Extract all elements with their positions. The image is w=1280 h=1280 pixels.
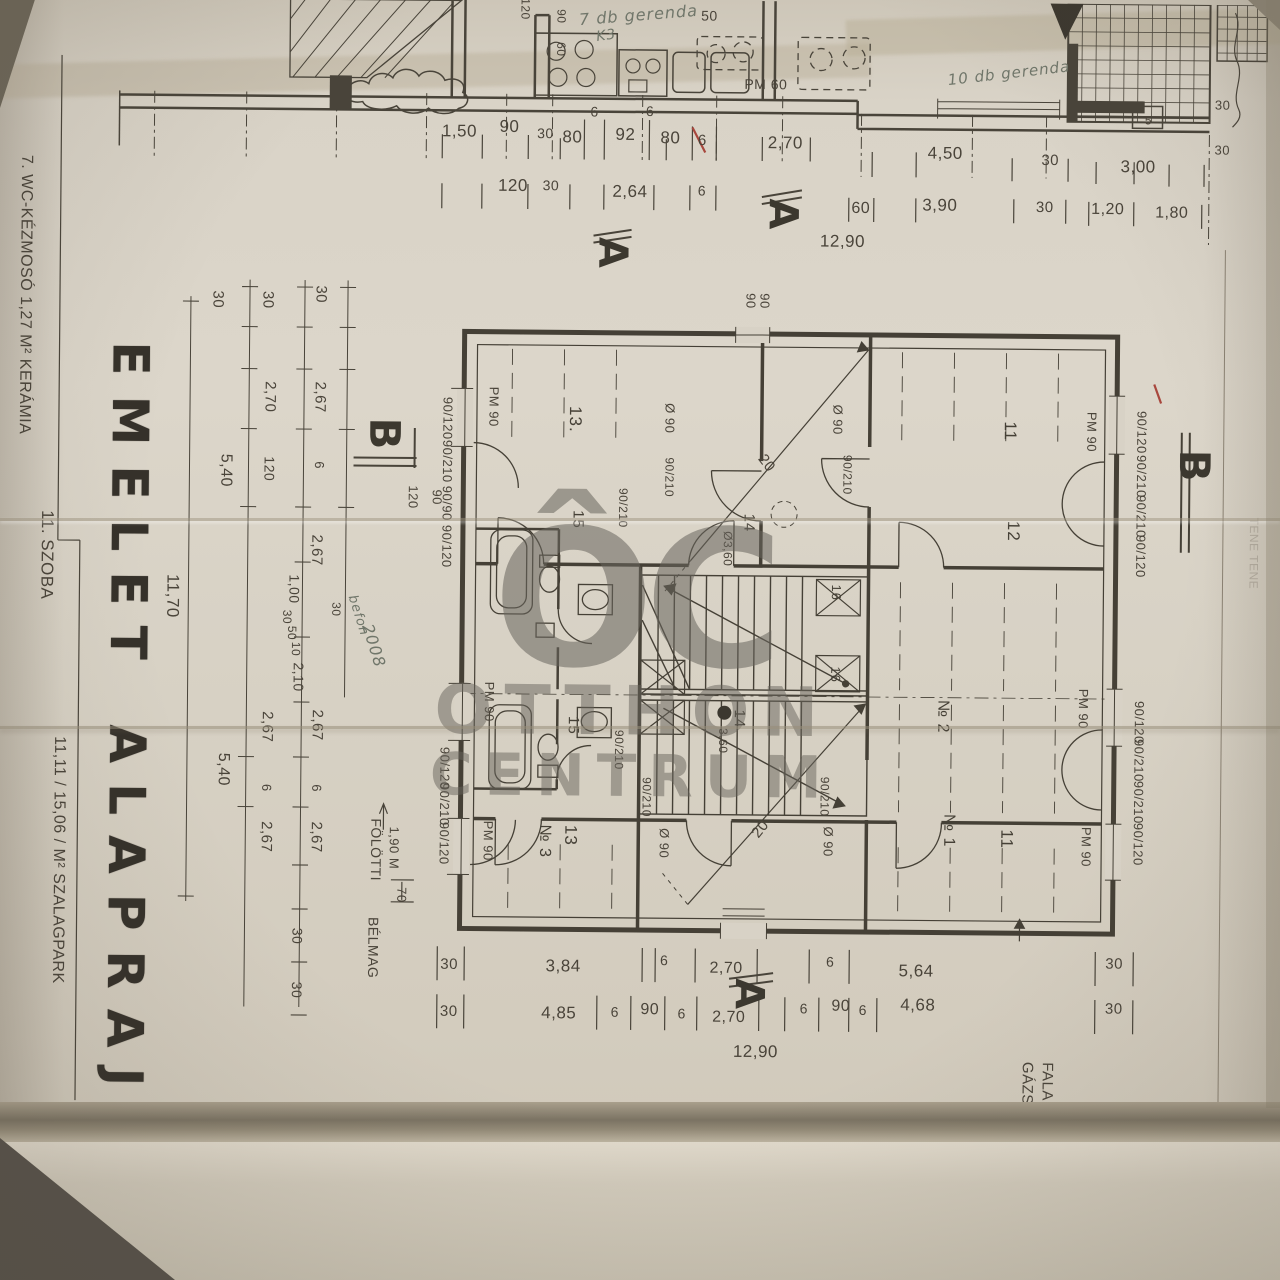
dimension-label: 90/210 <box>840 455 854 495</box>
dimension-label: Ø 90 <box>821 826 836 856</box>
dimension-label: 30 <box>329 602 343 616</box>
dimension-label: 60 <box>554 42 568 56</box>
dimension-label: 10 <box>289 642 303 656</box>
dimension-label: 90 <box>757 293 772 309</box>
dimension-label: 1,20 <box>1091 201 1124 219</box>
room-number: № 1 <box>939 814 957 848</box>
room-number: 11 <box>1000 421 1020 441</box>
room-number: № 3 <box>535 824 553 858</box>
dimension-label: 7 <box>644 1268 659 1276</box>
dimension-label: 90/120 <box>439 525 454 568</box>
dimension-label: 30 <box>1105 956 1123 973</box>
room-number: 12 <box>1003 521 1023 542</box>
dimension-label: 5,40 <box>216 454 234 487</box>
dimension-label: 30 <box>440 956 458 973</box>
dimension-label: 2,70 <box>709 960 742 978</box>
dimension-label: 5 <box>1145 113 1152 127</box>
dimension-label: 90/120 <box>1134 411 1149 454</box>
dimension-label: 6 <box>698 182 706 198</box>
section-marker-a-bottom: A <box>726 978 772 1010</box>
dimension-label: 30 <box>543 177 560 193</box>
dimension-label: TER <box>457 1256 471 1280</box>
dimension-label: KÁT 700/50 <box>994 1143 1012 1227</box>
dimension-label: 12,90 <box>820 232 865 252</box>
dimension-label: 2,67 <box>259 711 276 742</box>
dimension-label: 50 <box>701 8 718 24</box>
dimension-label: 90 <box>554 9 568 23</box>
dimension-label: 2,64 <box>612 182 647 202</box>
dimension-label: 2,70 <box>261 381 278 412</box>
dimension-label: 30 <box>1215 97 1231 112</box>
dimension-label: Ø 90 <box>657 828 672 858</box>
dimension-label: 30 <box>440 1003 458 1020</box>
dimension-label: 6 <box>312 461 327 469</box>
dimension-label: 30 <box>537 125 554 141</box>
dimension-label: 90/120 <box>1132 701 1147 744</box>
dimension-label: 120 <box>406 485 421 508</box>
dimension-label: 90 <box>640 1001 659 1019</box>
dimension-label: 20 <box>754 451 778 475</box>
dimension-label: 90/210 <box>1131 739 1146 782</box>
dimension-label: 90 <box>743 293 758 309</box>
dimension-label: 4,85 <box>541 1003 576 1023</box>
dimension-label: 70 <box>394 887 409 903</box>
faint-text: TENE TENE <box>1246 517 1261 589</box>
section-marker-a-top: A <box>760 198 806 230</box>
dimension-label: 6 <box>859 1002 867 1018</box>
section-label-bb: B-B <box>95 1194 136 1262</box>
dimension-label: 3,84 <box>546 956 581 976</box>
dimension-label: 50 <box>285 626 299 640</box>
dimension-label: 2,67 <box>311 382 328 413</box>
dimension-label: 6 <box>611 1004 619 1020</box>
dimension-label: FÖLÖTTI <box>368 818 385 881</box>
dimension-label: 30 <box>1105 1001 1123 1018</box>
dimension-label: GÁZS <box>1018 1062 1035 1105</box>
dimension-label: 2,67 <box>308 535 325 566</box>
dimension-label: 6 <box>698 132 707 149</box>
room-table-row2b: 11,11 / 15,06 / M² SZALAGPARK <box>48 736 68 984</box>
dimension-label: 6 <box>660 952 668 968</box>
dimension-label: PM 90 <box>1079 827 1094 867</box>
dimension-label: 30 <box>280 610 294 624</box>
room-number: 13. <box>565 406 585 433</box>
dimension-label: PM 90 <box>1076 689 1091 729</box>
room-number: № 2 <box>933 700 951 734</box>
dimension-label: 2,67 <box>308 822 325 853</box>
dimension-label: 30 <box>289 982 305 999</box>
dimension-label: 30 <box>209 290 226 308</box>
dimension-label: 1,00 <box>286 574 302 603</box>
watermark-name-bottom: CENTRUM <box>430 740 834 812</box>
section-marker-a-top2: A <box>589 237 635 269</box>
dimension-label: 3,00 <box>1253 1239 1268 1266</box>
room-table-row2a: 11. SZOBA <box>36 510 57 599</box>
handwritten-note: 7 db gerenda <box>578 1 698 29</box>
dimension-label: 2,70 <box>768 133 803 153</box>
dimension-label: 30 <box>1036 199 1054 216</box>
section-marker-b-right: B <box>1170 449 1219 482</box>
dimension-label: 11,70 <box>162 574 182 618</box>
dimension-label: 80 <box>660 128 680 148</box>
dimension-label: 6 <box>826 954 834 970</box>
room-table-row1: 7. WC-KÉZMOSÓ 1,27 M² KERÁMIA <box>15 155 35 435</box>
dimension-label: 80 <box>562 127 582 147</box>
dimension-label: 90/120 <box>437 822 452 865</box>
handwritten-note: K3 <box>595 26 617 44</box>
dimension-label: 90/120 <box>1133 535 1148 578</box>
dimension-label: 2,10 <box>291 662 307 691</box>
dimension-label: FALA <box>1038 1062 1055 1101</box>
section-marker-b-left: B <box>360 417 409 450</box>
dimension-label: PM 90 <box>1084 412 1099 452</box>
dimension-label: 92 <box>615 125 635 145</box>
dimension-label: 6 <box>800 1000 808 1016</box>
dimension-label: 30 <box>289 928 305 945</box>
dimension-label: 90/120 <box>1131 823 1146 866</box>
dimension-label: 90 <box>499 117 519 137</box>
dimension-label: 90 <box>831 998 850 1016</box>
dimension-label: 20 <box>748 817 772 841</box>
dimension-label: 90/120 <box>440 397 455 440</box>
dimension-label: PM 90 <box>481 821 496 861</box>
dimension-label: 5,40 <box>214 753 232 786</box>
dimension-label: 4,50 <box>928 143 963 163</box>
dimension-label: PM 60 <box>744 76 787 92</box>
plan-title-line1: EMELET <box>99 341 160 680</box>
dimension-label: 6 <box>678 1005 686 1021</box>
room-number: 16 <box>829 584 844 601</box>
room-number: 13 <box>560 825 580 846</box>
dimension-label: 90/210 <box>1134 455 1149 498</box>
handwritten-note: 2008 <box>358 621 390 669</box>
dimension-label: 5,64 <box>898 961 933 981</box>
dimension-label: 60 <box>851 200 870 218</box>
plan-title-line2: ALAPRAJZ <box>94 724 156 1162</box>
dimension-label: 120 <box>498 176 528 196</box>
dimension-label: 90/210 <box>1131 781 1146 824</box>
room-number: 11 <box>996 829 1016 849</box>
handwritten-note: ÉNK -1,0 <box>413 1120 441 1181</box>
dimension-label: 6 <box>590 104 598 120</box>
dimension-label: 30 <box>259 291 276 309</box>
dimension-label: 2,70 <box>712 1009 745 1027</box>
dimension-label: 12,90 <box>733 1042 778 1062</box>
dimension-label: 1,90 M <box>386 826 401 869</box>
dimension-label: PM 90 <box>486 387 501 427</box>
dimension-label: 90/210 <box>440 440 455 483</box>
dimension-label: 2,67 <box>309 710 326 741</box>
dimension-label: Ø 90 <box>830 405 845 435</box>
dimension-label: 120 <box>518 0 532 20</box>
dimension-label: 4,68 <box>900 995 935 1015</box>
dimension-label: 30 <box>1041 152 1059 169</box>
dimension-label: +3,0 <box>568 1255 582 1280</box>
dimension-label: 3,00 <box>248 1225 265 1256</box>
dimension-label: Ø 90 <box>662 403 677 433</box>
dimension-label: 6· <box>646 103 660 119</box>
handwritten-note: 10 db gerenda <box>947 57 1071 89</box>
dimension-label: 30 <box>312 285 329 303</box>
dimension-label: 3,00 <box>1121 157 1156 177</box>
dimension-label: 30 <box>1214 142 1230 157</box>
dimension-label: 1,80 <box>1155 204 1188 222</box>
drawing-area: 1,509030806926·8062,704,50303,00120302,6… <box>0 0 1280 1280</box>
dimension-label: 2,67 <box>258 821 275 852</box>
dimension-label: BÉLMAG <box>365 917 382 978</box>
scanned-floorplan-photo: 1,509030806926·8062,704,50303,00120302,6… <box>0 0 1280 1280</box>
dimension-label: 1,50 <box>442 121 477 141</box>
dimension-label: 3,90 <box>922 195 957 215</box>
dimension-label: 90/210 <box>1133 495 1148 538</box>
dimension-label: 6 <box>309 784 324 792</box>
dimension-label: 120 <box>261 456 277 481</box>
dimension-label: 90/90 <box>440 486 455 521</box>
dimension-label: 6 <box>259 784 274 792</box>
labels-layer: 1,509030806926·8062,704,50303,00120302,6… <box>0 0 1280 1280</box>
